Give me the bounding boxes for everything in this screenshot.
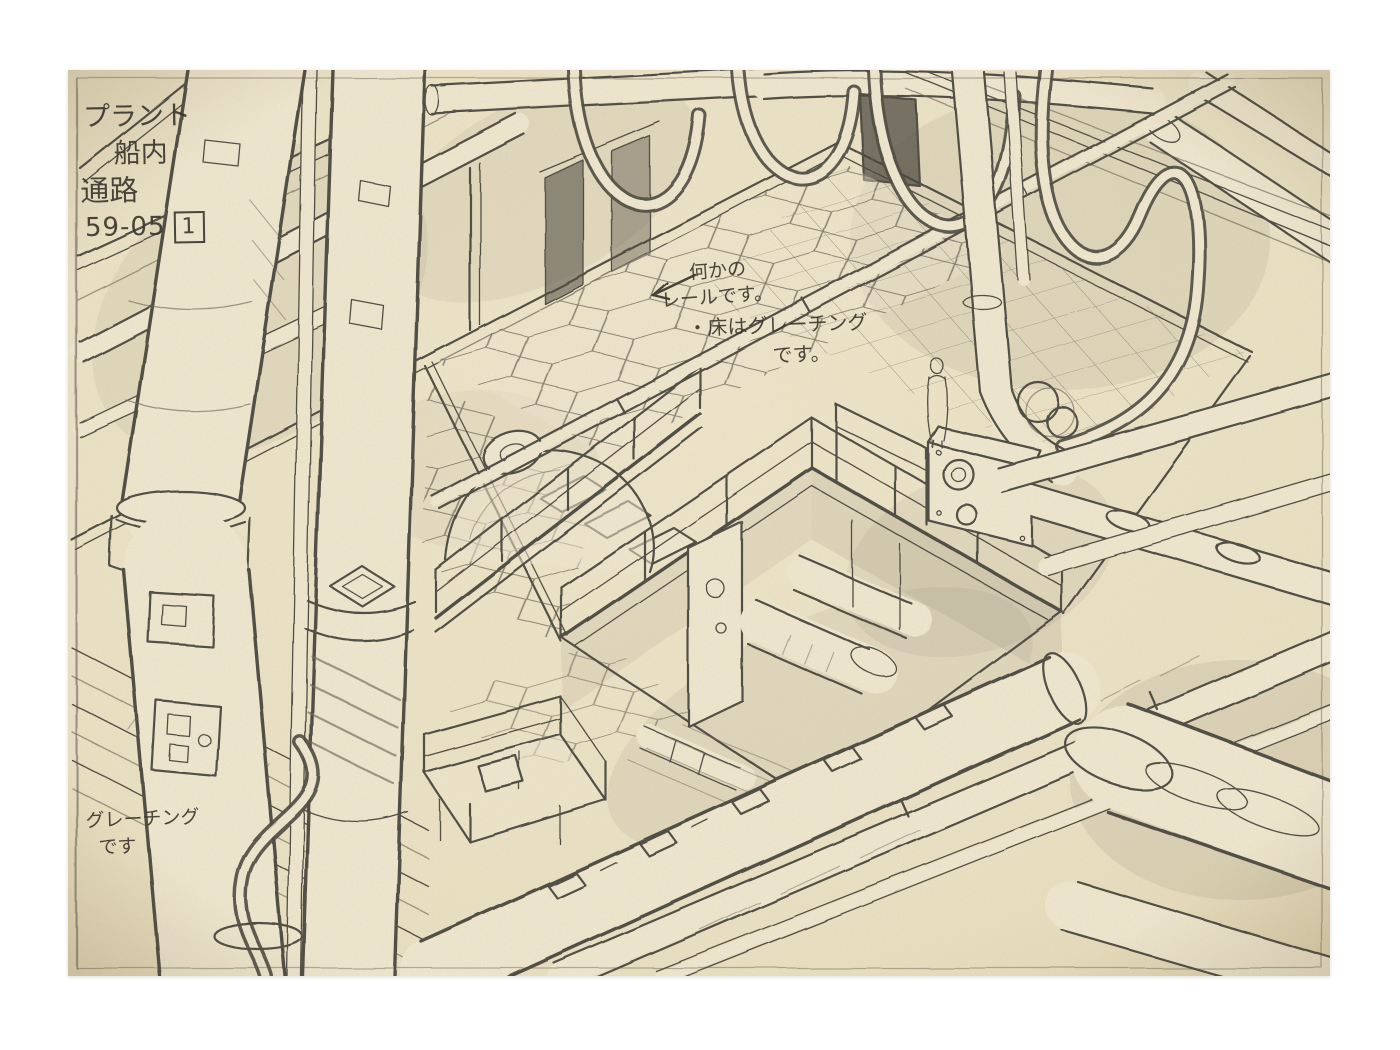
grating-annotation: グレーチング です: [85, 804, 201, 862]
paper-vignette: [68, 70, 1330, 976]
grating-annotation-line2: です: [98, 831, 201, 862]
plant-interior-sketch: [0, 0, 1400, 1050]
cut-code: 59-05 1: [85, 208, 205, 247]
label-title: プラント: [83, 97, 203, 136]
cut-number-box: 1: [173, 210, 205, 243]
rail-annotation: 何かの レールです。: [658, 254, 773, 314]
label-subtitle: 船内: [113, 134, 203, 173]
floor-annotation-line2: です。: [772, 337, 869, 370]
floor-annotation: ・床はグレーチング です。: [687, 307, 869, 373]
scanned-pencil-drawing: プラント 船内 通路 59-05 1 何かの レールです。 ・床はグレーチング …: [0, 0, 1400, 1050]
production-label: プラント 船内 通路 59-05 1: [83, 97, 205, 247]
floor-annotation-line1: ・床はグレーチング: [687, 307, 868, 343]
label-passage: 通路: [80, 171, 204, 210]
grating-annotation-line1: グレーチング: [85, 804, 200, 835]
cut-code-text: 59-05: [85, 209, 166, 247]
